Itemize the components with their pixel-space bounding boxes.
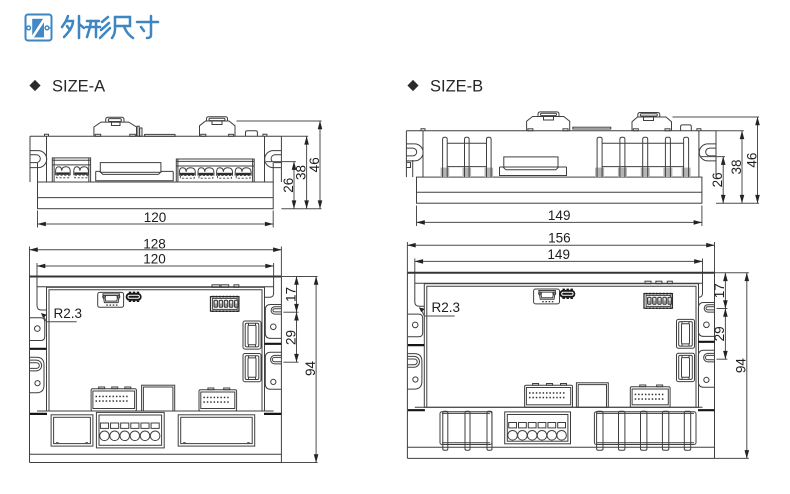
svg-text:38: 38 bbox=[729, 159, 744, 174]
svg-text:128: 128 bbox=[143, 236, 166, 251]
svg-text:46: 46 bbox=[744, 153, 759, 168]
svg-text:120: 120 bbox=[143, 252, 166, 267]
svg-text:94: 94 bbox=[734, 358, 749, 374]
svg-text:149: 149 bbox=[548, 208, 571, 223]
svg-text:SIZE-B: SIZE-B bbox=[430, 77, 483, 95]
svg-text:29: 29 bbox=[712, 326, 727, 341]
svg-text:SIZE-A: SIZE-A bbox=[52, 77, 105, 95]
svg-text:17: 17 bbox=[283, 287, 298, 302]
svg-text:R2.3: R2.3 bbox=[432, 300, 461, 315]
svg-text:46: 46 bbox=[307, 157, 322, 172]
svg-text:156: 156 bbox=[548, 231, 571, 246]
svg-text:26: 26 bbox=[710, 172, 725, 187]
svg-text:149: 149 bbox=[547, 247, 570, 262]
svg-text:29: 29 bbox=[283, 330, 298, 345]
svg-text:17: 17 bbox=[712, 283, 727, 298]
svg-text:94: 94 bbox=[303, 361, 318, 377]
svg-text:120: 120 bbox=[144, 210, 167, 225]
svg-text:R2.3: R2.3 bbox=[54, 306, 83, 321]
